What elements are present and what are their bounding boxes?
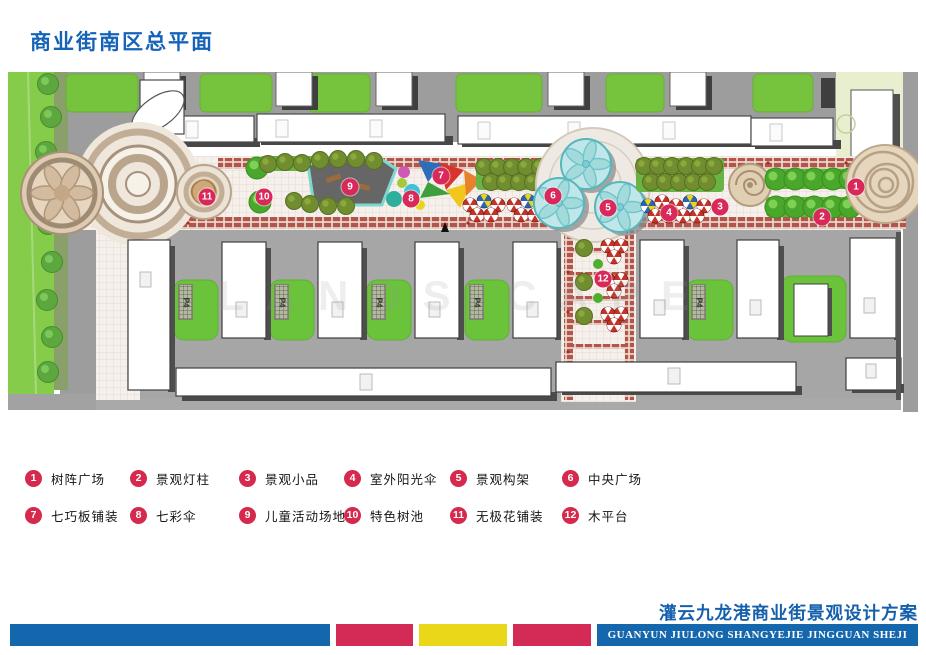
central-plaza bbox=[534, 128, 650, 242]
plan-marker-4: 4 bbox=[661, 205, 678, 222]
legend-item-6: 6中央广场 bbox=[562, 469, 642, 487]
legend-label: 七巧板铺装 bbox=[51, 506, 119, 525]
legend-label: 特色树池 bbox=[370, 506, 424, 525]
plan-marker-9: 9 bbox=[342, 179, 359, 196]
footer-bar-red-right bbox=[513, 624, 591, 646]
legend-label: 木平台 bbox=[588, 506, 629, 525]
legend-badge: 5 bbox=[450, 470, 467, 487]
parking-label: P4 bbox=[371, 284, 386, 320]
footer-bar-yellow bbox=[419, 624, 507, 646]
legend-item-4: 4室外阳光伞 bbox=[344, 469, 438, 487]
spiral-tree-pool bbox=[729, 164, 771, 206]
legend-label: 景观构架 bbox=[476, 469, 530, 488]
page-title: 商业街南区总平面 bbox=[30, 26, 214, 56]
legend-label: 无极花铺装 bbox=[476, 506, 544, 525]
legend-badge: 11 bbox=[450, 507, 467, 524]
parking-label: P4 bbox=[691, 284, 706, 320]
site-plan-drawing bbox=[8, 72, 918, 425]
legend-badge: 8 bbox=[130, 507, 147, 524]
legend-item-12: 12木平台 bbox=[562, 506, 629, 524]
legend-item-5: 5景观构架 bbox=[450, 469, 530, 487]
legend-label: 景观灯柱 bbox=[156, 469, 210, 488]
parking-label: P4 bbox=[274, 284, 289, 320]
footer-bar-red-left bbox=[336, 624, 413, 646]
legend-badge: 10 bbox=[344, 507, 361, 524]
plan-marker-2: 2 bbox=[814, 209, 831, 226]
legend-item-8: 8七彩伞 bbox=[130, 506, 197, 524]
legend-item-1: 1树阵广场 bbox=[25, 469, 105, 487]
plan-marker-11: 11 bbox=[199, 189, 216, 206]
project-title-en: GUANYUN JIULONG SHANGYEJIE JINGGUAN SHEJ… bbox=[608, 629, 908, 655]
legend-item-10: 10特色树池 bbox=[344, 506, 424, 524]
legend-badge: 12 bbox=[562, 507, 579, 524]
legend-label: 室外阳光伞 bbox=[370, 469, 438, 488]
plan-marker-12: 12 bbox=[595, 271, 612, 288]
legend-badge: 1 bbox=[25, 470, 42, 487]
legend-item-2: 2景观灯柱 bbox=[130, 469, 210, 487]
legend-badge: 9 bbox=[239, 507, 256, 524]
legend-label: 中央广场 bbox=[588, 469, 642, 488]
project-title-cn: 灌云九龙港商业街景观设计方案 bbox=[659, 600, 918, 625]
legend-badge: 4 bbox=[344, 470, 361, 487]
legend-badge: 7 bbox=[25, 507, 42, 524]
site-plan: LANDS CAPE 123456789101112 P4P4P4P4P4 bbox=[8, 72, 918, 425]
project-title-en-bar: GUANYUN JIULONG SHANGYEJIE JINGGUAN SHEJ… bbox=[597, 624, 918, 646]
legend-badge: 3 bbox=[239, 470, 256, 487]
plan-marker-6: 6 bbox=[545, 188, 562, 205]
legend-label: 儿童活动场地 bbox=[265, 506, 346, 525]
sheet: 商业街南区总平面 bbox=[0, 0, 926, 655]
legend-badge: 6 bbox=[562, 470, 579, 487]
legend-item-7: 7七巧板铺装 bbox=[25, 506, 119, 524]
legend-label: 景观小品 bbox=[265, 469, 319, 488]
legend-label: 树阵广场 bbox=[51, 469, 105, 488]
legend-badge: 2 bbox=[130, 470, 147, 487]
plan-marker-10: 10 bbox=[256, 189, 273, 206]
legend-item-3: 3景观小品 bbox=[239, 469, 319, 487]
parking-label: P4 bbox=[178, 284, 193, 320]
plan-marker-5: 5 bbox=[600, 200, 617, 217]
parking-label: P4 bbox=[469, 284, 484, 320]
legend-item-9: 9儿童活动场地 bbox=[239, 506, 346, 524]
legend-label: 七彩伞 bbox=[156, 506, 197, 525]
footer-bar-blue bbox=[10, 624, 330, 646]
plan-marker-1: 1 bbox=[848, 179, 865, 196]
plan-marker-3: 3 bbox=[712, 199, 729, 216]
plan-marker-7: 7 bbox=[433, 168, 450, 185]
plan-marker-8: 8 bbox=[403, 191, 420, 208]
legend-item-11: 11无极花铺装 bbox=[450, 506, 544, 524]
